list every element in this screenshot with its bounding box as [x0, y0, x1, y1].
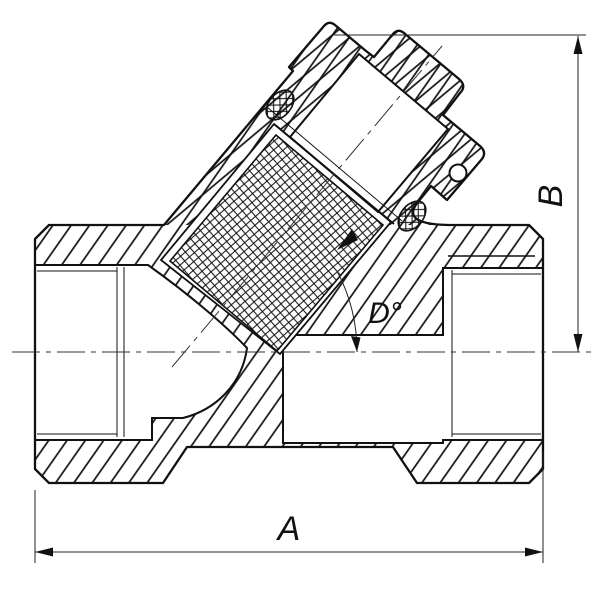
dim-b-arrow-bottom [574, 334, 583, 352]
drawing-canvas: A B D° [0, 0, 600, 600]
technical-drawing: A B D° [0, 0, 600, 600]
dim-angle-label: D° [368, 297, 402, 330]
dim-a-label: A [276, 510, 301, 548]
dim-b-arrow-top [574, 36, 583, 54]
dim-b-label: B [532, 185, 570, 208]
dim-a-arrow-left [35, 548, 53, 557]
dim-a-arrow-right [525, 548, 543, 557]
